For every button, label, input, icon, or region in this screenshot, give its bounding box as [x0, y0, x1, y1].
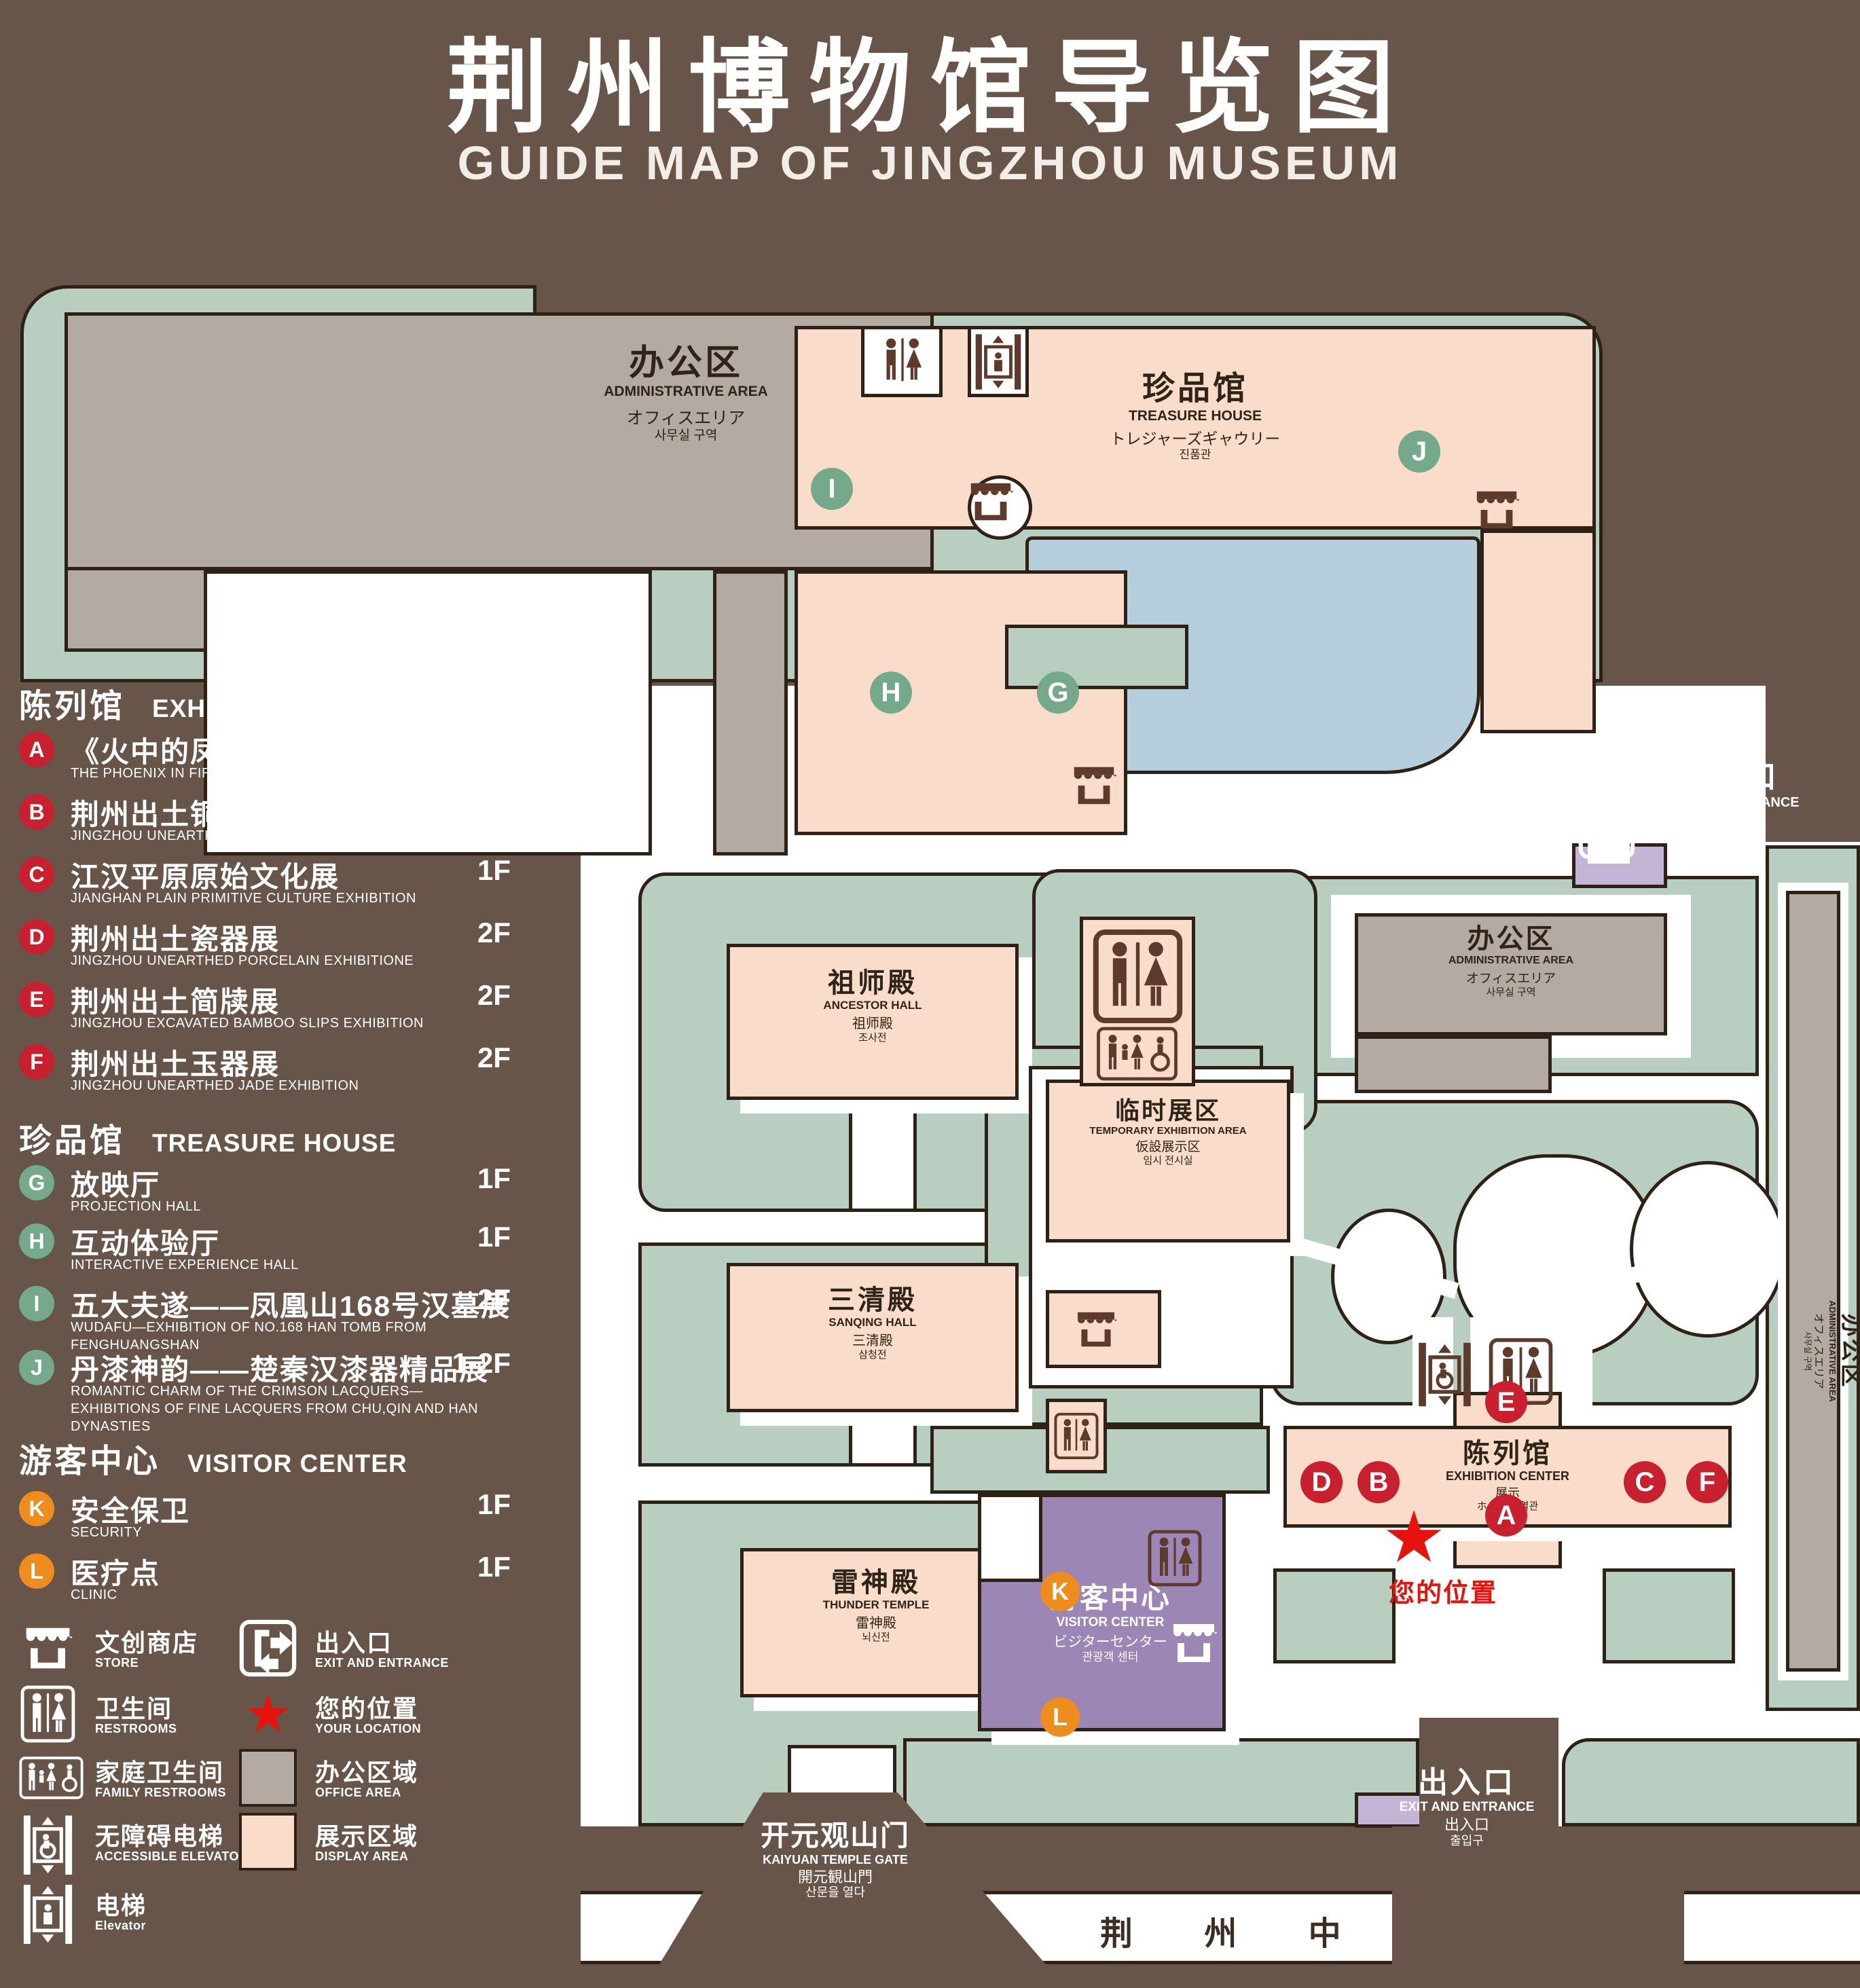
restroom-icon [1148, 1524, 1202, 1592]
marker-C: C [1624, 1461, 1666, 1503]
admin-east-building-ext [1355, 1035, 1552, 1093]
legend-section-exhibition-en: EXHIBITION CENTER [152, 695, 418, 722]
admin-east-strip-label: 办公区 ADMINISTRATIVE AREA オフィスエリア 사무실 구역 [1762, 1154, 1860, 1548]
badge-K: K [19, 1491, 54, 1526]
ec-green-southeast [1603, 1568, 1735, 1663]
treasure-house-label: 珍品馆 TREASURE HOUSE トレジャーズギャウリー 진품관 [1059, 370, 1331, 461]
ec-channel-right [1562, 1317, 1592, 1429]
kaiyuan-gate-label: 开元观山门 KAIYUAN TEMPLE GATE 開元観山門 산문을 열다 [693, 1820, 978, 1900]
badge-L: L [19, 1553, 54, 1589]
badge-C: C [19, 857, 54, 892]
badge-B: B [19, 794, 54, 830]
northeast-exit-label: 出入口 EXIT AND ENTRANCE 出入口 출입구 [1616, 759, 1840, 844]
family-restroom-icon [1095, 1027, 1180, 1081]
restroom-icon [1092, 929, 1184, 1024]
green-south-band [903, 1738, 1419, 1826]
exit-icon [1577, 803, 1637, 860]
admin-northwest-label: 办公区 ADMINISTRATIVE AREA オフィスエリア 사무실 구역 [550, 343, 822, 443]
badge-H: H [19, 1223, 54, 1259]
green-southeast [1562, 1738, 1860, 1826]
family-restroom-icon [19, 1749, 84, 1807]
legend-section-exhibition-header: 陈列馆EXHIBITION CENTER [19, 679, 418, 726]
badge-A: A [19, 732, 54, 767]
legend-section-treasure-header: 珍品馆TREASURE HOUSE [19, 1113, 396, 1161]
legend-section-visitor-header: 游客中心VISITOR CENTER [19, 1434, 407, 1481]
marker-E: E [1485, 1381, 1527, 1423]
treasure-house-east-wing [1480, 530, 1596, 733]
marker-K: K [1040, 1572, 1080, 1611]
badge-F: F [19, 1044, 54, 1080]
legend-section-treasure-zh: 珍品馆 [19, 1123, 125, 1159]
legend-section-exhibition-zh: 陈列馆 [19, 688, 125, 724]
your-location-label: 您的位置 [1358, 1579, 1528, 1608]
badge-E: E [19, 982, 54, 1017]
legend-section-treasure-en: TREASURE HOUSE [152, 1129, 396, 1157]
restroom-icon [19, 1685, 77, 1743]
badge-D: D [19, 919, 54, 955]
admin-east-label: 办公区 ADMINISTRATIVE AREA オフィスエリア 사무실 구역 [1375, 923, 1647, 998]
restroom-icon [1054, 1407, 1099, 1465]
badge-J: J [19, 1350, 54, 1385]
page-subtitle: GUIDE MAP OF JINGZHOU MUSEUM [0, 136, 1860, 190]
office-area-swatch [239, 1749, 297, 1807]
restroom-icon [869, 334, 936, 391]
marker-I: I [811, 468, 853, 510]
south-exit-road-break [1392, 1826, 1684, 1988]
thunder-temple-label: 雷神殿 THUNDER TEMPLE 雷神殿 뇌신전 [740, 1567, 1012, 1644]
store-icon [1470, 483, 1523, 536]
temp-exhibition-label: 临时展区 TEMPORARY EXHIBITION AREA 仮設展示区 임시 … [1046, 1097, 1290, 1167]
sanqing-hall-label: 三清殿 SANQING HALL 三清殿 삼청전 [727, 1285, 1019, 1361]
location-star-icon: ★ [239, 1685, 297, 1743]
marker-A: A [1485, 1494, 1527, 1536]
legend-section-visitor-en: VISITOR CENTER [187, 1450, 407, 1477]
page-title: 荆州博物馆导览图 [0, 5, 1860, 153]
exit-icon [239, 1619, 297, 1677]
accessible-elevator-icon [19, 1813, 77, 1877]
marker-F: F [1686, 1461, 1728, 1503]
store-icon [1068, 759, 1120, 812]
elevator-icon [19, 1882, 77, 1947]
legend-section-visitor-zh: 游客中心 [19, 1443, 160, 1479]
guide-map-poster: 荆州博物馆导览图 GUIDE MAP OF JINGZHOU MUSEUM 荆 … [0, 0, 1860, 1988]
marker-G: G [1037, 671, 1079, 714]
marker-L: L [1040, 1697, 1080, 1737]
badge-I: I [19, 1286, 54, 1321]
display-area-swatch [239, 1813, 297, 1871]
ancestor-hall-label: 祖师殿 ANCESTOR HALL 祖师殿 조사전 [727, 968, 1019, 1044]
marker-B: B [1357, 1461, 1400, 1503]
elevator-icon [973, 331, 1023, 392]
store-icon [19, 1619, 77, 1677]
treasure-house-green-notch [1005, 625, 1188, 689]
admin-northwest-arm [713, 570, 788, 855]
path-courtyard-2 [849, 1412, 917, 1467]
your-location-star: ★ [1382, 1504, 1446, 1572]
store-icon [964, 475, 1017, 528]
store-icon [1167, 1616, 1221, 1670]
marker-H: H [870, 671, 912, 714]
south-exit-label: 出入口 EXIT AND ENTRANCE 出入口 출입구 [1355, 1765, 1579, 1847]
accessible-elevator-icon [1416, 1339, 1474, 1410]
store-icon [1072, 1305, 1120, 1354]
marker-D: D [1300, 1461, 1343, 1503]
badge-G: G [19, 1165, 54, 1200]
path-courtyard-1 [849, 1100, 917, 1212]
marker-J: J [1398, 430, 1440, 473]
